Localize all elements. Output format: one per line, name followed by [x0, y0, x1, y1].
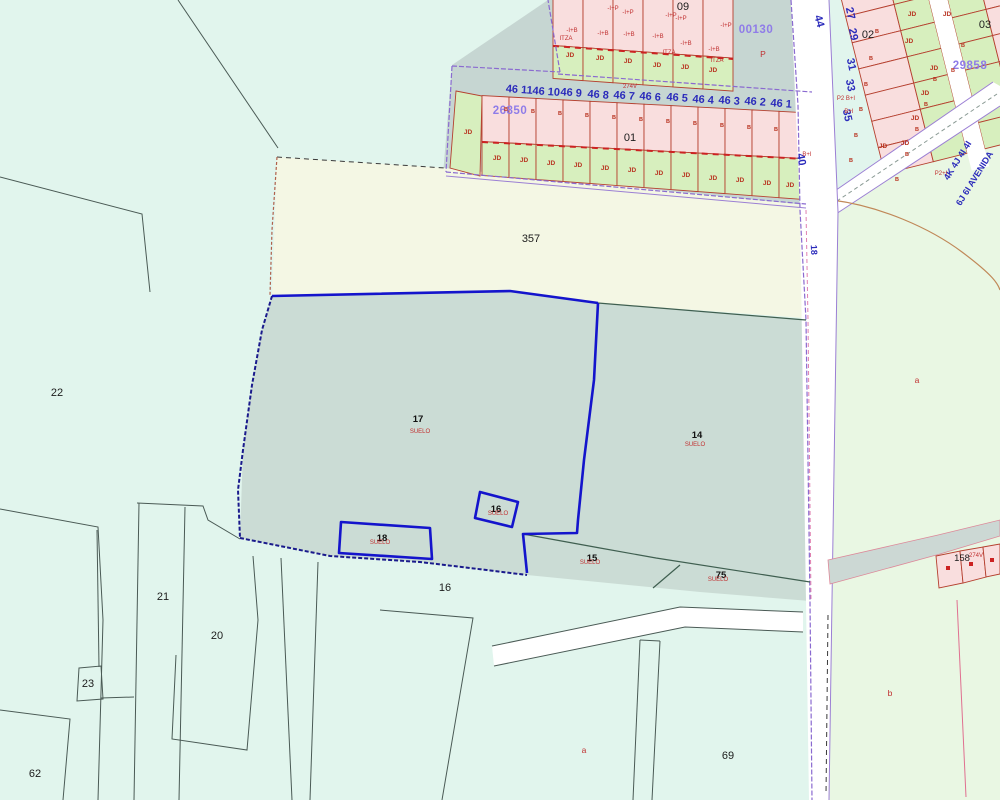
- jd-label: JD: [763, 180, 772, 187]
- jd-label: JD: [943, 11, 952, 18]
- parcel-17: 17: [413, 414, 424, 425]
- jd-label: JD: [901, 140, 910, 147]
- jd-label: JD: [547, 160, 556, 167]
- b-mark: B: [849, 158, 853, 164]
- b-mark: B: [951, 68, 955, 74]
- parcel-cell[interactable]: [698, 153, 725, 194]
- ann-iplusp: -I+P: [607, 6, 618, 12]
- parcel-158: 158: [954, 553, 970, 564]
- parcel-cell[interactable]: [725, 108, 752, 155]
- block-09: 09: [677, 1, 689, 13]
- ann-iplusb: -I+B: [708, 47, 719, 53]
- ann-iplusb: -I+B: [597, 31, 608, 37]
- b-mark: B: [504, 107, 508, 113]
- house-46-3: 46 3: [718, 94, 740, 107]
- block-03: 03: [979, 19, 991, 31]
- jd-label: JD: [682, 172, 691, 179]
- b-mark: B: [612, 115, 616, 121]
- ann-itza: ITZA: [711, 58, 724, 64]
- ann-iplusp: -I+P: [720, 23, 731, 29]
- parcel-14-suelo: SUELO: [685, 442, 706, 448]
- block-01: 01: [624, 132, 636, 144]
- parcel-21: 21: [157, 591, 169, 603]
- jd-label: JD: [628, 167, 637, 174]
- ann-iplusb: -I+B: [623, 32, 634, 38]
- parcel-cell[interactable]: [482, 96, 509, 143]
- ann-p2bi: P2 B+I: [837, 96, 856, 102]
- jd-label: JD: [736, 177, 745, 184]
- parcel-22: 22: [51, 387, 63, 399]
- b-mark: B: [585, 113, 589, 119]
- parcel-20: 20: [211, 630, 223, 642]
- subparcel-a: a: [915, 375, 920, 385]
- jd-label: JD: [786, 182, 795, 189]
- parcel-cell[interactable]: [725, 154, 752, 195]
- parcel-69: 69: [722, 750, 734, 762]
- house-46-10: 46 10: [532, 85, 560, 99]
- jd-label: JD: [493, 155, 502, 162]
- ann-iplusp: -I+P: [622, 10, 633, 16]
- jd-label: JD: [596, 55, 605, 62]
- house-46-5: 46 5: [666, 91, 688, 104]
- b-mark: B: [859, 107, 863, 113]
- parcel-16-suelo: SUELO: [488, 511, 509, 517]
- jd-label: JD: [911, 115, 920, 122]
- cadastral-map: 090102033572221202362166915817SUELO14SUE…: [0, 0, 1000, 800]
- parcel-cell[interactable]: [671, 106, 698, 153]
- parcel-cell[interactable]: [590, 101, 617, 148]
- b-mark: B: [915, 127, 919, 133]
- jd-label: JD: [930, 65, 939, 72]
- b-mark: B: [905, 152, 909, 158]
- jd-label: JD: [879, 143, 888, 150]
- jd-label: JD: [574, 162, 583, 169]
- ann-bi: B+I: [802, 152, 812, 158]
- parcel-cell[interactable]: [643, 0, 673, 54]
- b-mark: B: [666, 119, 670, 125]
- ann-iplusp: -I+P: [675, 16, 686, 22]
- b-mark: B: [895, 177, 899, 183]
- jd-label: JD: [709, 67, 718, 74]
- parcel-cell[interactable]: [536, 98, 563, 145]
- street-31: 31: [844, 57, 858, 71]
- parcel-14: 14: [692, 430, 703, 441]
- jd-label: JD: [681, 64, 690, 71]
- parcel-62: 62: [29, 768, 41, 780]
- jd-label: JD: [709, 175, 718, 182]
- parcel-16-lower: 16: [439, 582, 451, 594]
- ann-274v: 274V: [969, 553, 983, 559]
- parcel-17-suelo: SUELO: [410, 429, 431, 435]
- jd-label: JD: [921, 90, 930, 97]
- parcel-357: 357: [522, 233, 540, 245]
- b-mark: B: [924, 102, 928, 108]
- jd-label: JD: [655, 170, 664, 177]
- parcel-75-suelo: SUELO: [708, 577, 729, 583]
- b-mark: B: [720, 123, 724, 129]
- b-mark: B: [961, 43, 965, 49]
- parcel-cell[interactable]: [752, 110, 779, 157]
- b-mark: B: [693, 121, 697, 127]
- street-27: 27: [843, 6, 857, 20]
- parcel-cell[interactable]: [563, 100, 590, 147]
- parcel-23: 23: [82, 678, 94, 690]
- street-18: 18: [809, 245, 820, 256]
- b-mark: B: [531, 109, 535, 115]
- b-mark: B: [869, 56, 873, 62]
- jd-label: JD: [601, 165, 610, 172]
- block-02: 02: [862, 29, 874, 41]
- b-mark: B: [774, 127, 778, 133]
- street-29: 29: [846, 27, 860, 41]
- parcel-area-green-right[interactable]: [818, 110, 1000, 800]
- ann-iplusb: -I+B: [652, 34, 663, 40]
- b-mark: B: [558, 111, 562, 117]
- ann-bi: B+I: [844, 109, 854, 115]
- parcel-cell[interactable]: [752, 156, 779, 198]
- subparcel-b: b: [888, 688, 893, 698]
- b-mark: B: [933, 77, 937, 83]
- house-46-4: 46 4: [692, 93, 715, 107]
- parcel-15-suelo: SUELO: [580, 560, 601, 566]
- b-mark: B: [747, 125, 751, 131]
- subparcel-a: a: [582, 745, 587, 755]
- code-26850: 26850: [493, 105, 527, 117]
- ann-itza: ITZA: [663, 50, 676, 56]
- jd-label: JD: [653, 62, 662, 69]
- house-46-7: 46 7: [613, 89, 635, 102]
- ann-iplusb: -I+B: [566, 28, 577, 34]
- ann-p: P: [760, 49, 766, 59]
- jd-label: JD: [520, 157, 529, 164]
- parcel-cell[interactable]: [698, 107, 725, 154]
- house-46-2: 46 2: [744, 95, 766, 108]
- jd-label: JD: [464, 129, 473, 136]
- house-46-8: 46 8: [587, 88, 609, 101]
- house-46-9: 46 9: [560, 86, 582, 99]
- jd-label: JD: [624, 58, 633, 65]
- ann-p2i: P2+I: [935, 171, 948, 177]
- b-mark: B: [639, 117, 643, 123]
- house-46-1: 46 1: [770, 97, 792, 110]
- jd-label: JD: [566, 52, 575, 59]
- street-33: 33: [843, 78, 857, 92]
- ann-274v: 274V: [623, 84, 637, 90]
- jd-label: JD: [905, 38, 914, 45]
- parcel-cell[interactable]: [644, 104, 671, 151]
- house-46-6: 46 6: [639, 90, 661, 103]
- house-46-11: 46 11: [505, 83, 533, 97]
- code-00130: 00130: [739, 24, 773, 36]
- b-mark: B: [875, 29, 879, 35]
- ann-itza: ITZA: [560, 36, 573, 42]
- parcel-cell[interactable]: [553, 46, 583, 81]
- b-mark: B: [854, 133, 858, 139]
- jd-label: JD: [908, 11, 917, 18]
- ann-iplusb: -I+B: [680, 41, 691, 47]
- b-mark: B: [864, 82, 868, 88]
- parcel-18-suelo: SUELO: [370, 540, 391, 546]
- code-29858: 29858: [953, 60, 988, 72]
